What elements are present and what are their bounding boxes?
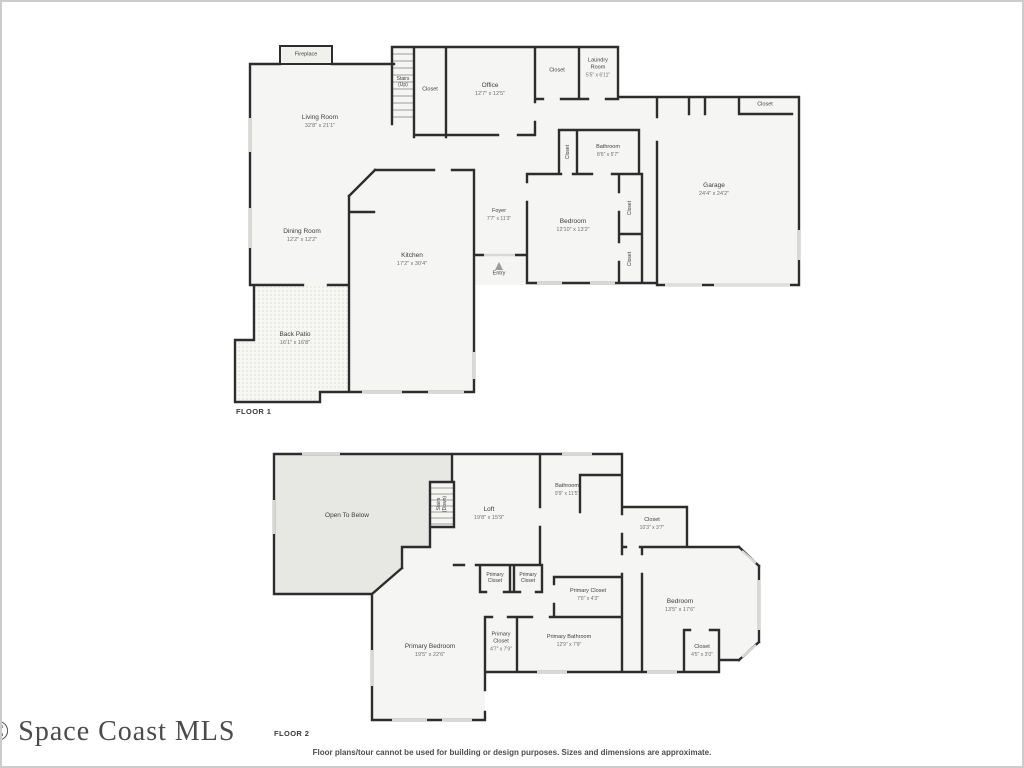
back-patio-surface — [235, 285, 349, 402]
floor1-room-fills — [235, 47, 799, 402]
floor-plan-canvas — [2, 2, 1024, 768]
disclaimer-text: Floor plans/tour cannot be used for buil… — [2, 748, 1022, 757]
fireplace-box — [280, 46, 332, 64]
mls-watermark: © Space Coast MLS — [0, 716, 235, 748]
floor2-room-fills — [274, 454, 759, 720]
floor-plan-image: FireplaceLiving Room32'8" x 21'1"Stairs … — [0, 0, 1024, 768]
